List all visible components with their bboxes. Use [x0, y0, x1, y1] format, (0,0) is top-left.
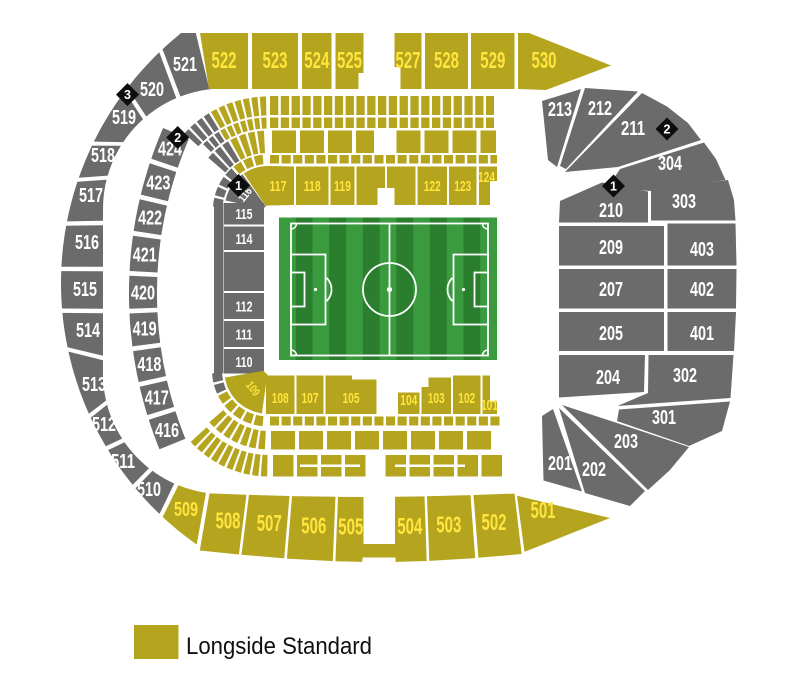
svg-text:416: 416 [155, 420, 179, 442]
svg-text:103: 103 [428, 391, 445, 407]
svg-text:3: 3 [124, 88, 131, 102]
svg-text:530: 530 [532, 47, 557, 73]
svg-text:525: 525 [337, 47, 362, 73]
svg-text:104: 104 [400, 393, 417, 409]
svg-text:211: 211 [621, 118, 645, 140]
svg-text:1: 1 [235, 179, 242, 193]
svg-text:122: 122 [424, 179, 441, 195]
svg-text:107: 107 [302, 391, 319, 407]
svg-text:213: 213 [548, 99, 572, 121]
svg-text:503: 503 [436, 512, 461, 538]
svg-text:119: 119 [334, 179, 351, 195]
svg-text:401: 401 [690, 323, 714, 345]
svg-text:1: 1 [610, 180, 617, 194]
svg-text:102: 102 [458, 391, 475, 407]
svg-text:212: 212 [588, 98, 612, 120]
svg-text:201: 201 [548, 453, 572, 475]
svg-text:302: 302 [673, 365, 697, 387]
svg-text:528: 528 [434, 47, 459, 73]
svg-text:505: 505 [338, 513, 363, 539]
svg-text:518: 518 [91, 145, 115, 167]
svg-text:2: 2 [664, 123, 671, 137]
svg-text:207: 207 [599, 279, 623, 301]
svg-text:418: 418 [137, 354, 161, 376]
svg-text:524: 524 [304, 47, 329, 73]
svg-text:501: 501 [531, 497, 556, 523]
svg-text:506: 506 [301, 512, 326, 538]
svg-text:517: 517 [79, 185, 103, 207]
svg-text:301: 301 [652, 407, 676, 429]
svg-text:520: 520 [140, 79, 164, 101]
svg-text:209: 209 [599, 237, 623, 259]
svg-text:2: 2 [174, 131, 181, 145]
svg-text:205: 205 [599, 323, 623, 345]
svg-text:417: 417 [145, 387, 169, 409]
svg-text:419: 419 [133, 319, 157, 341]
svg-text:516: 516 [75, 232, 99, 254]
svg-text:512: 512 [92, 414, 116, 436]
svg-text:507: 507 [257, 510, 282, 536]
svg-text:422: 422 [138, 208, 162, 230]
svg-text:202: 202 [582, 459, 606, 481]
svg-text:203: 203 [614, 431, 638, 453]
svg-text:515: 515 [73, 279, 97, 301]
svg-text:402: 402 [690, 279, 714, 301]
svg-text:527: 527 [396, 47, 421, 73]
svg-text:110: 110 [236, 355, 253, 371]
svg-text:118: 118 [304, 179, 321, 195]
svg-text:Longside Standard: Longside Standard [186, 633, 372, 660]
svg-text:508: 508 [216, 507, 241, 533]
svg-text:514: 514 [76, 320, 101, 342]
svg-text:303: 303 [672, 191, 696, 213]
svg-text:510: 510 [137, 479, 161, 501]
svg-text:521: 521 [173, 54, 197, 76]
svg-text:509: 509 [174, 499, 198, 521]
svg-text:504: 504 [397, 513, 422, 539]
svg-text:123: 123 [454, 179, 471, 195]
svg-text:124: 124 [478, 170, 495, 186]
svg-text:115: 115 [236, 207, 253, 223]
svg-text:529: 529 [480, 47, 505, 73]
svg-text:423: 423 [146, 173, 170, 195]
svg-text:421: 421 [133, 245, 157, 267]
svg-text:511: 511 [111, 451, 135, 473]
svg-text:513: 513 [82, 374, 106, 396]
svg-text:204: 204 [596, 367, 621, 389]
svg-text:522: 522 [212, 47, 237, 73]
svg-text:111: 111 [236, 328, 253, 344]
svg-text:117: 117 [270, 179, 287, 195]
svg-text:210: 210 [599, 200, 623, 222]
svg-text:304: 304 [658, 153, 683, 175]
svg-text:403: 403 [690, 239, 714, 261]
svg-text:101: 101 [481, 398, 498, 414]
svg-text:523: 523 [263, 47, 288, 73]
svg-text:519: 519 [112, 107, 136, 129]
svg-text:114: 114 [236, 232, 253, 248]
svg-text:105: 105 [343, 391, 360, 407]
svg-text:420: 420 [131, 282, 155, 304]
svg-text:502: 502 [482, 509, 507, 535]
svg-text:112: 112 [236, 300, 253, 316]
svg-text:108: 108 [272, 391, 289, 407]
